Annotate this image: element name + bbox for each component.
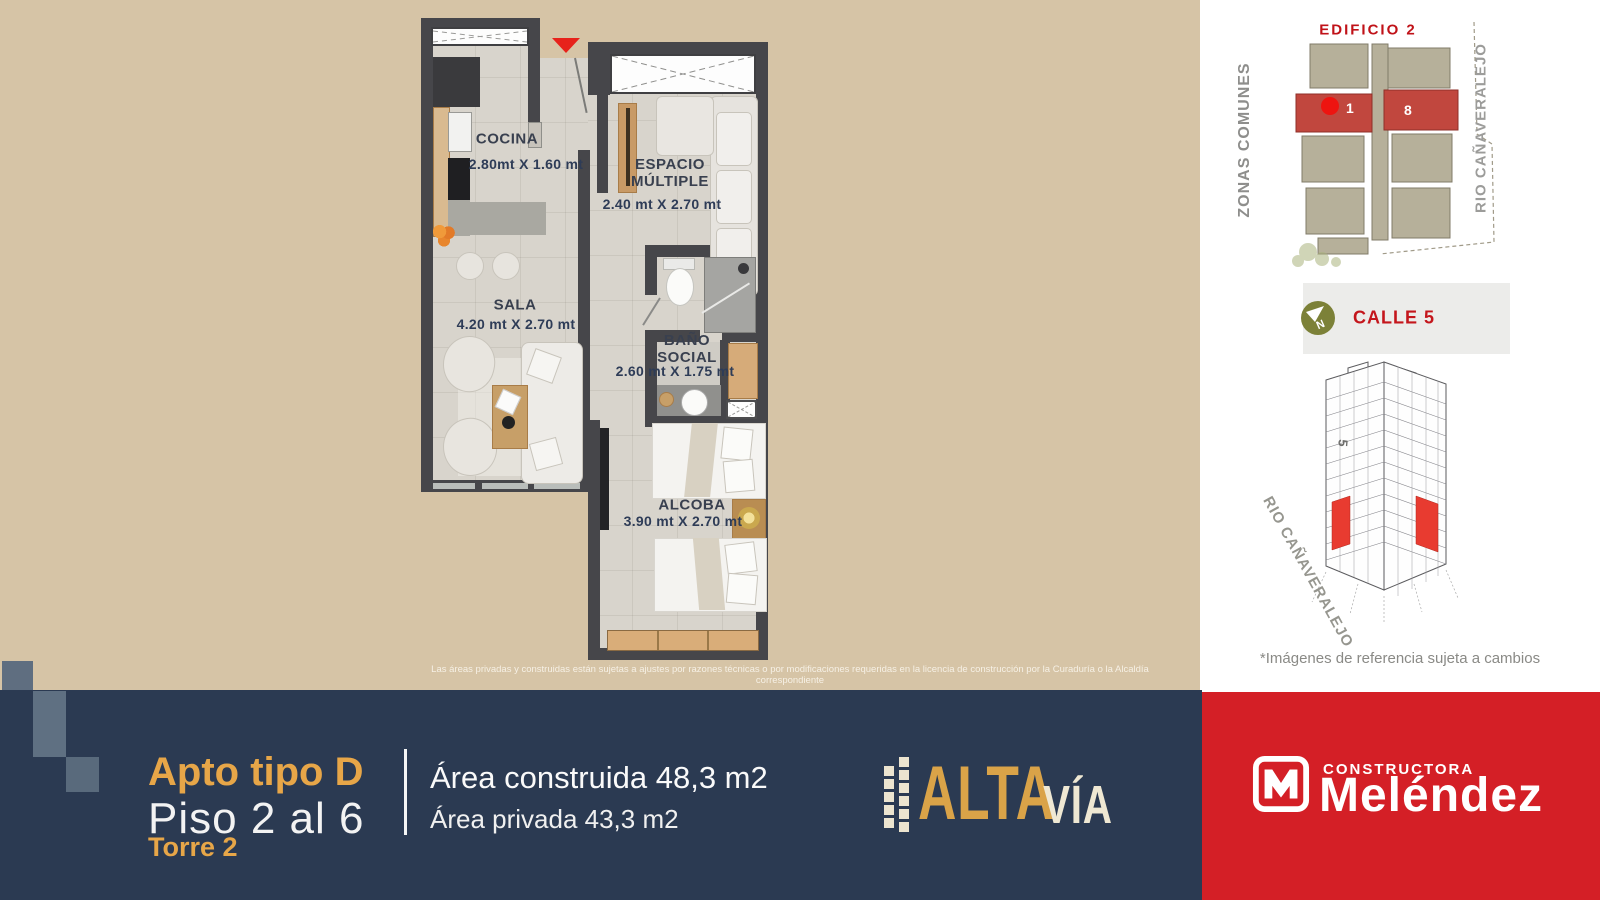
altavia-square [899,796,909,806]
altavia-square [899,757,909,767]
stool-1 [456,252,484,280]
label-cocina: COCINA [476,130,538,147]
closet-cell [608,631,659,650]
altavia-square [884,805,894,815]
sofa-cushion-1 [716,112,752,166]
deco-square-2 [33,691,66,757]
unit-number-8: 8 [1404,102,1412,118]
toilet-bowl [666,268,694,306]
dims-cocina: 2.80mt X 1.60 mt [469,156,584,172]
vanity-stool [659,392,674,407]
wall-bath-left-a [645,257,657,295]
apt-type-title: Apto tipo D [148,750,364,795]
altavia-square [884,766,894,776]
street-number-rotated: 5 [1335,439,1351,448]
plan-disclaimer: Las áreas privadas y construidas están s… [405,664,1175,686]
calle5-label: CALLE 5 [1353,308,1435,329]
wall-espacio-top [588,42,768,54]
deco-square-3 [66,757,99,792]
closet-cell [709,631,758,650]
tv-panel [600,428,609,530]
dims-sala: 4.20 mt X 2.70 mt [457,316,576,332]
label-alcoba: ALCOBA [658,496,725,513]
washer [726,400,757,419]
bed-2-pillow-b [726,573,759,606]
coffee-table-vase [502,416,515,429]
altavia-wordmark-via: VÍA [1043,778,1113,832]
sectional-sofa-chaise [656,96,714,156]
altavia-square [884,818,894,828]
shower-head [738,263,749,274]
wall-left [421,18,433,492]
kitchen-window [431,27,529,46]
unit-number-1: 1 [1346,100,1354,116]
vanity-sink [681,389,708,416]
compass-icon: N [1299,299,1337,337]
label-espacio: ESPACIO MÚLTIPLE [631,156,709,191]
fridge [433,57,480,107]
melendez-logo-icon [1252,755,1310,813]
kitchen-island-bar [448,202,546,235]
footer-divider [404,749,407,835]
reference-caption: *Imágenes de referencia sujeta a cambios [1200,650,1600,667]
entry-marker-triangle [552,38,580,53]
area-built: Área construida 48,3 m2 [430,760,768,796]
altavia-square [899,822,909,832]
flyer-canvas: COCINA 2.80mt X 1.60 mt ESPACIO MÚLTIPLE… [0,0,1600,900]
stove [448,158,470,200]
espacio-window [610,54,756,94]
altavia-square [899,783,909,793]
zonas-comunes-label: ZONAS COMUNES [1236,62,1254,217]
dims-alcoba: 3.90 mt X 2.70 mt [624,513,743,529]
closet-cell [659,631,710,650]
label-sala: SALA [494,296,537,313]
altavia-square [884,779,894,789]
dims-espacio: 2.40 mt X 2.70 mt [603,196,722,212]
label-bano: BAÑO SOCIAL [657,332,717,367]
altavia-square [899,770,909,780]
builder-name: Meléndez [1319,768,1543,823]
dims-bano: 2.60 mt X 1.75 mt [616,363,735,379]
deco-square-1 [2,661,33,690]
unit-marker-dot [1321,97,1339,115]
wall-espacio-topleft-corner [588,42,610,95]
bed-2-pillow [724,541,757,574]
wall-espacio-left [597,95,608,193]
altavia-square [884,792,894,802]
stool-2 [492,252,520,280]
altavia-wordmark-alta: ALTA [918,756,1055,832]
sala-window-1 [433,483,475,489]
sala-window-2 [482,483,528,489]
alcoba-closet [607,630,759,651]
kitchen-sink [448,112,472,152]
site-plan: 1 8 [1288,14,1503,274]
area-private: Área privada 43,3 m2 [430,804,679,835]
apt-tower: Torre 2 [148,832,238,863]
bed-1-pillow [720,427,753,462]
bed-1-pillow-b [723,459,756,493]
rio-canaveralejo-label-right: RIO CAÑAVERALEJO [1473,43,1490,213]
flower-decor [433,225,455,247]
wall-alcoba-left [588,420,600,660]
wall-kitchen-right [528,18,540,122]
altavia-square [899,809,909,819]
media-cabinet-panel [626,108,630,186]
